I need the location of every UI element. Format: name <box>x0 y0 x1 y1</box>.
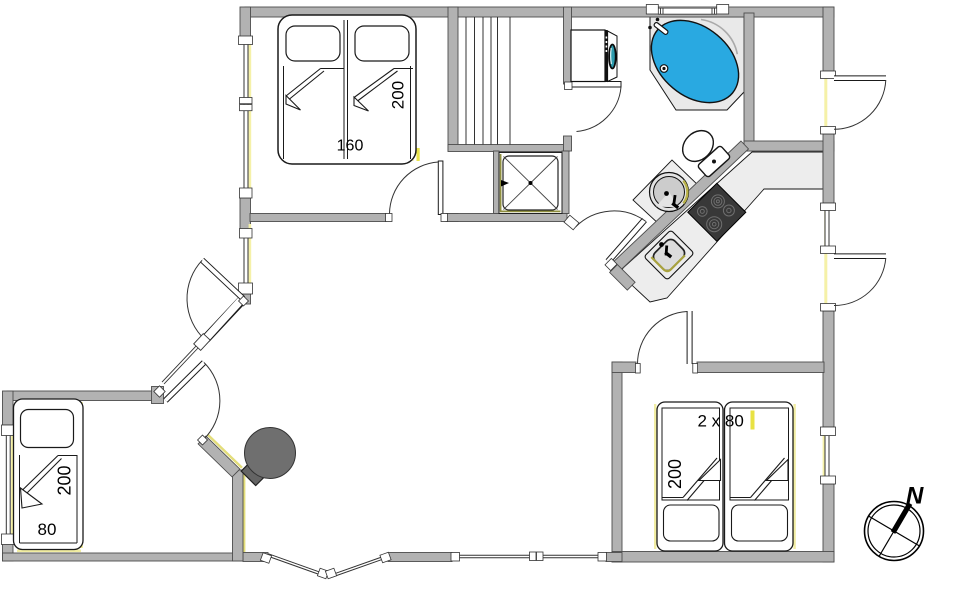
svg-text:2 x 80: 2 x 80 <box>698 412 744 431</box>
svg-text:N: N <box>906 483 924 510</box>
svg-text:160: 160 <box>337 138 364 155</box>
svg-text:80: 80 <box>38 520 57 539</box>
svg-text:200: 200 <box>389 81 408 109</box>
svg-text:200: 200 <box>665 459 685 489</box>
svg-text:200: 200 <box>55 465 75 495</box>
